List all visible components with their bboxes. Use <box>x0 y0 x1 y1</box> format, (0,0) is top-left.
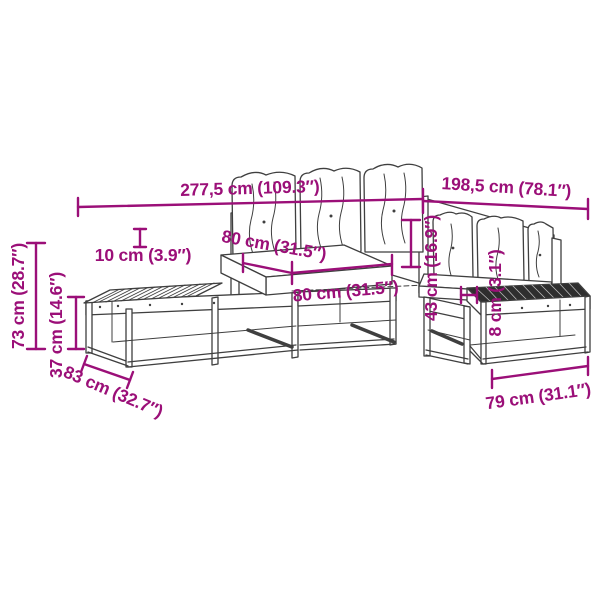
dim-height-total <box>27 243 45 349</box>
dim-label-seat-height: 43 cm (16.9″) <box>421 215 441 321</box>
dim-label-right-section: 198,5 cm (78.1″) <box>441 173 572 201</box>
diagram-canvas: 277,5 cm (109.3″) 198,5 cm (78.1″) 73 cm… <box>0 0 600 600</box>
dim-label-total-length: 277,5 cm (109.3″) <box>180 176 320 200</box>
dim-height-table <box>68 297 84 349</box>
back-cushion <box>364 164 423 252</box>
dimension-diagram: 277,5 cm (109.3″) 198,5 cm (78.1″) 73 cm… <box>0 0 600 600</box>
back-cushion <box>528 222 554 284</box>
dim-label-right-table-depth: 79 cm (31.1″) <box>484 379 592 414</box>
dim-label-gap-small: 8 cm (3.1″) <box>485 250 505 337</box>
base-frame-left <box>86 291 298 367</box>
dim-label-height-table: 37 cm (14.6″) <box>46 272 66 378</box>
dim-label-height-total: 73 cm (28.7″) <box>8 243 28 349</box>
dim-label-left-table-depth: 83 cm (32.7″) <box>61 362 166 422</box>
dim-label-back-offset: 10 cm (3.9″) <box>95 245 191 265</box>
